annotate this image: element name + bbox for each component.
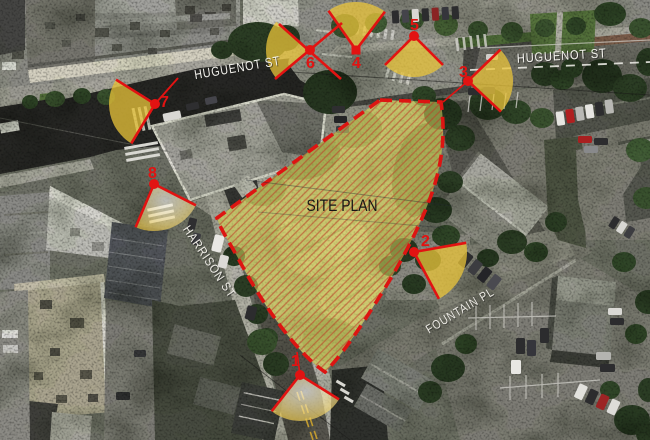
- svg-text:3: 3: [459, 64, 468, 81]
- svg-text:7: 7: [160, 94, 169, 111]
- svg-text:4: 4: [352, 55, 361, 72]
- svg-text:8: 8: [148, 165, 157, 182]
- svg-text:5: 5: [410, 17, 419, 34]
- svg-text:6: 6: [306, 55, 315, 72]
- svg-text:SITE PLAN: SITE PLAN: [307, 197, 378, 215]
- svg-text:1: 1: [291, 353, 300, 370]
- svg-text:2: 2: [421, 233, 430, 250]
